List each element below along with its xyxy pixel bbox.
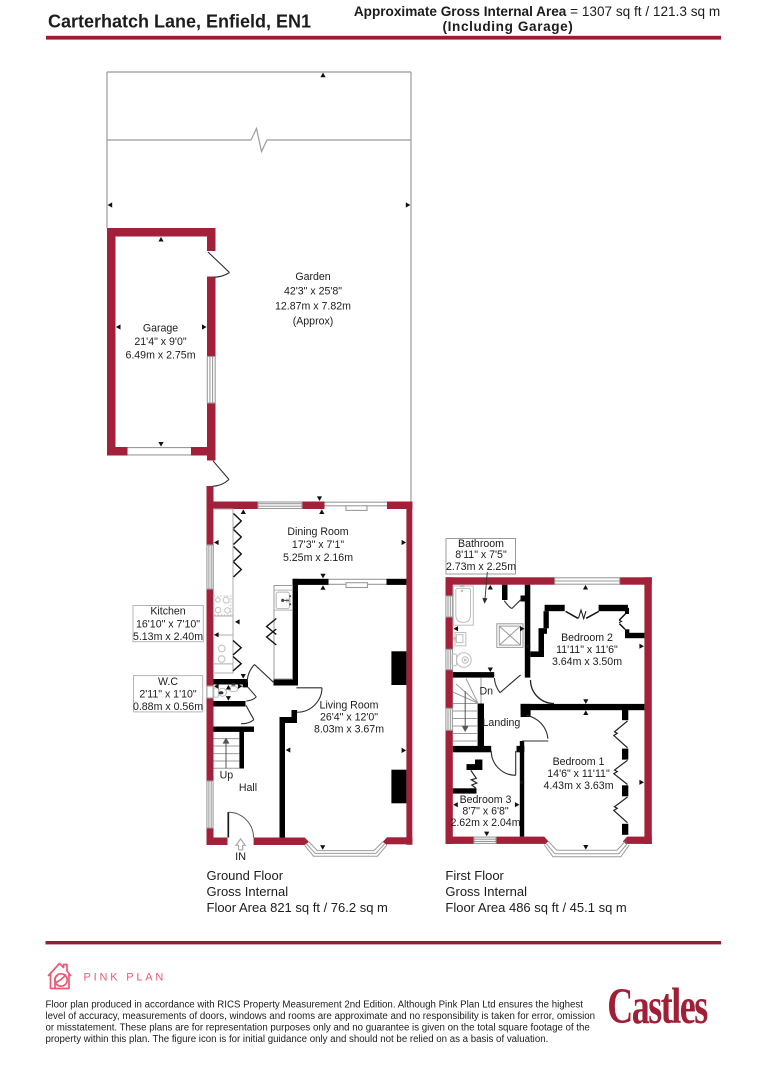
svg-text:17'3" x 7'1": 17'3" x 7'1": [292, 539, 344, 551]
svg-text:5.25m x 2.16m: 5.25m x 2.16m: [283, 552, 353, 564]
svg-text:Bedroom 1: Bedroom 1: [553, 756, 605, 768]
svg-text:Up: Up: [220, 770, 234, 782]
svg-text:Approximate Gross Internal Are: Approximate Gross Internal Area = 1307 s…: [354, 4, 720, 19]
svg-text:(Including Garage): (Including Garage): [443, 19, 574, 34]
svg-text:Dn: Dn: [480, 686, 494, 698]
svg-text:0.88m x 0.56m: 0.88m x 0.56m: [133, 701, 203, 713]
svg-text:16'10" x 7'10": 16'10" x 7'10": [136, 618, 200, 630]
svg-text:Kitchen: Kitchen: [150, 605, 185, 617]
svg-text:Landing: Landing: [483, 717, 521, 729]
svg-text:14'6" x 11'11": 14'6" x 11'11": [547, 768, 610, 780]
svg-text:6.49m x 2.75m: 6.49m x 2.75m: [125, 350, 195, 362]
svg-text:Ground Floor: Ground Floor: [207, 868, 284, 883]
svg-text:Dining Room: Dining Room: [287, 526, 348, 538]
svg-text:IN: IN: [235, 851, 246, 863]
svg-text:2.62m x 2.04m: 2.62m x 2.04m: [450, 817, 520, 829]
svg-text:Carterhatch Lane, Enfield, EN1: Carterhatch Lane, Enfield, EN1: [48, 12, 311, 32]
svg-text:Floor plan produced in accorda: Floor plan produced in accordance with R…: [46, 1000, 584, 1011]
svg-text:2'11" x 1'10": 2'11" x 1'10": [139, 689, 197, 701]
svg-text:Gross Internal: Gross Internal: [445, 884, 527, 899]
svg-text:First Floor: First Floor: [445, 868, 504, 883]
svg-text:11'11" x 11'6": 11'11" x 11'6": [556, 644, 618, 656]
svg-text:5.13m x 2.40m: 5.13m x 2.40m: [133, 631, 203, 643]
svg-text:W.C: W.C: [158, 676, 178, 688]
svg-text:8'7" x 6'8": 8'7" x 6'8": [462, 806, 509, 818]
svg-text:or misstatement. These plans a: or misstatement. These plans are for rep…: [46, 1023, 590, 1034]
svg-text:Bedroom 2: Bedroom 2: [561, 632, 613, 644]
svg-text:property within this plan. The: property within this plan. The figure ic…: [46, 1034, 549, 1045]
svg-text:42'3" x 25'8": 42'3" x 25'8": [284, 286, 342, 298]
svg-text:Garage: Garage: [143, 323, 178, 335]
svg-text:26'4" x 12'0": 26'4" x 12'0": [320, 712, 378, 724]
svg-text:2.73m x 2.25m: 2.73m x 2.25m: [446, 561, 516, 573]
svg-text:Castles: Castles: [607, 979, 707, 1034]
svg-text:3.64m x 3.50m: 3.64m x 3.50m: [552, 656, 622, 668]
svg-text:8'11" x 7'5": 8'11" x 7'5": [455, 549, 507, 561]
svg-text:Living Room: Living Room: [320, 700, 379, 712]
svg-text:PINK PLAN: PINK PLAN: [84, 972, 167, 984]
svg-text:Garden: Garden: [295, 271, 330, 283]
svg-text:Floor Area 821 sq ft / 76.2 sq: Floor Area 821 sq ft / 76.2 sq m: [207, 900, 388, 915]
svg-text:12.87m x 7.82m: 12.87m x 7.82m: [275, 301, 351, 313]
svg-text:4.43m x 3.63m: 4.43m x 3.63m: [543, 780, 613, 792]
svg-text:(Approx): (Approx): [293, 316, 334, 328]
svg-text:Gross Internal: Gross Internal: [207, 884, 289, 899]
svg-text:level of accuracy, measurement: level of accuracy, measurements of doors…: [46, 1011, 596, 1022]
svg-text:Bedroom 3: Bedroom 3: [460, 794, 512, 806]
svg-text:Floor Area 486 sq ft / 45.1 sq: Floor Area 486 sq ft / 45.1 sq m: [445, 900, 626, 915]
svg-text:8.03m x 3.67m: 8.03m x 3.67m: [314, 724, 384, 736]
svg-text:Hall: Hall: [239, 782, 257, 794]
svg-text:21'4" x 9'0": 21'4" x 9'0": [134, 336, 186, 348]
